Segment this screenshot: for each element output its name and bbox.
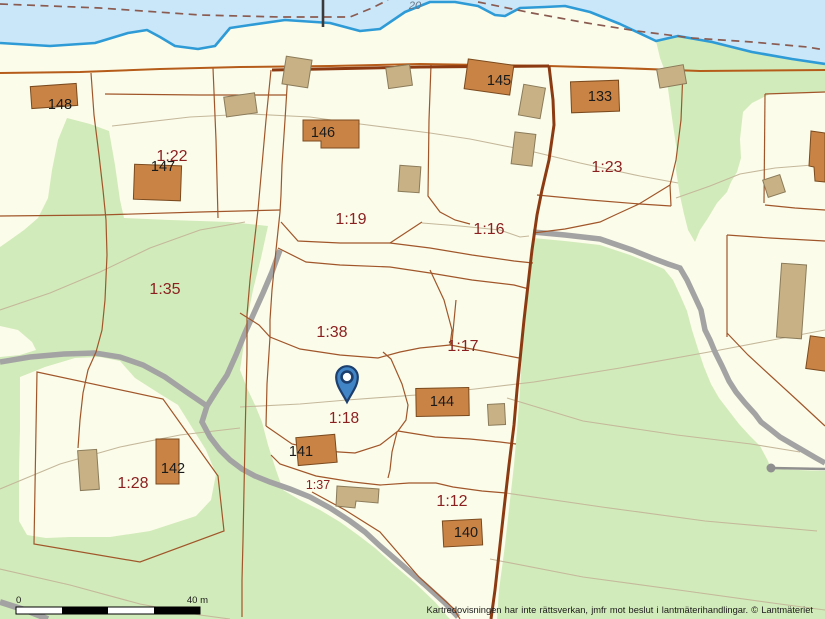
svg-text:140: 140 bbox=[454, 525, 478, 541]
svg-text:1:28: 1:28 bbox=[117, 475, 148, 492]
svg-text:142: 142 bbox=[161, 461, 185, 477]
svg-text:0: 0 bbox=[16, 595, 21, 606]
svg-text:146: 146 bbox=[311, 125, 335, 141]
svg-text:1:38: 1:38 bbox=[316, 324, 347, 341]
svg-text:1:22: 1:22 bbox=[156, 148, 187, 165]
svg-text:40 m: 40 m bbox=[187, 595, 208, 606]
svg-text:1:17: 1:17 bbox=[447, 338, 478, 355]
svg-text:133: 133 bbox=[588, 89, 612, 105]
svg-text:1:19: 1:19 bbox=[335, 211, 366, 228]
svg-text:20: 20 bbox=[408, 0, 422, 12]
svg-text:148: 148 bbox=[48, 97, 72, 113]
svg-text:1:35: 1:35 bbox=[149, 281, 180, 298]
svg-text:1:16: 1:16 bbox=[473, 221, 504, 238]
svg-text:1:12: 1:12 bbox=[436, 493, 467, 510]
svg-text:145: 145 bbox=[487, 73, 511, 89]
svg-text:1:18: 1:18 bbox=[329, 410, 359, 427]
svg-text:144: 144 bbox=[430, 394, 454, 410]
svg-text:141: 141 bbox=[289, 444, 313, 460]
svg-text:Kartredovisningen har inte rät: Kartredovisningen har inte rättsverkan, … bbox=[427, 605, 814, 615]
svg-text:1:37: 1:37 bbox=[306, 478, 330, 492]
svg-text:1:23: 1:23 bbox=[591, 159, 622, 176]
